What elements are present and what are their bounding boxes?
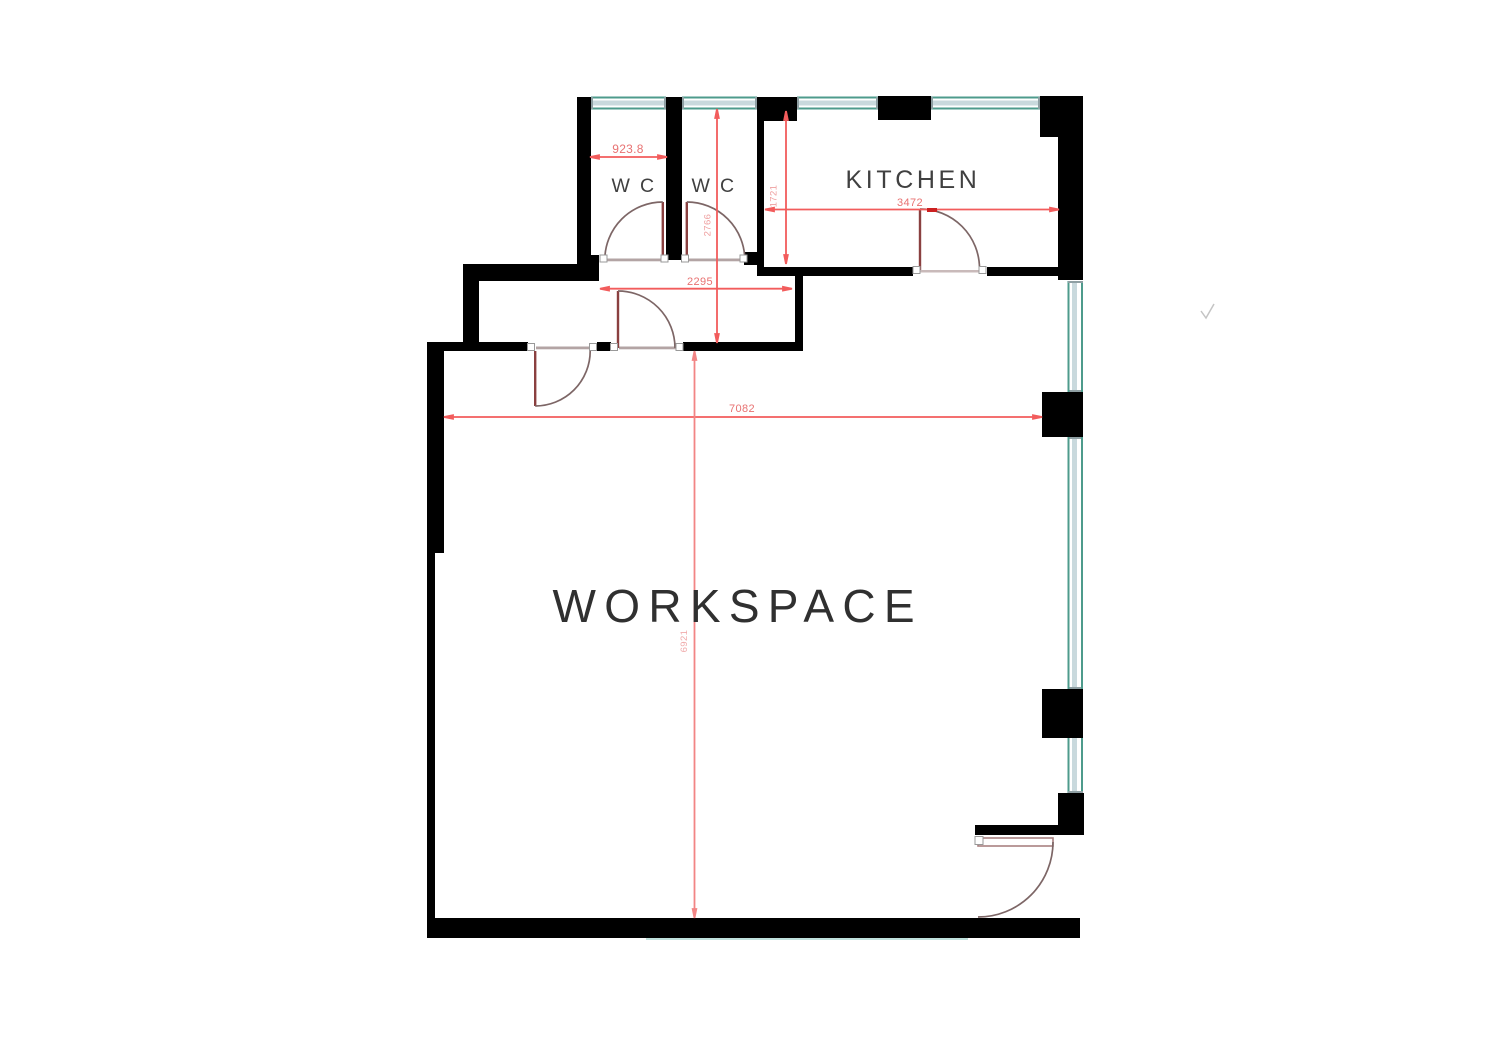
svg-text:KITCHEN: KITCHEN	[846, 166, 981, 194]
svg-text:2295: 2295	[687, 276, 713, 288]
svg-text:7082: 7082	[729, 403, 755, 415]
svg-text:W C: W C	[691, 175, 736, 197]
svg-text:923.8: 923.8	[612, 142, 644, 156]
svg-text:6921: 6921	[679, 630, 690, 653]
svg-text:W C: W C	[611, 175, 656, 197]
svg-text:WORKSPACE: WORKSPACE	[553, 580, 923, 632]
svg-text:2766: 2766	[703, 214, 714, 237]
svg-text:3472: 3472	[897, 197, 923, 209]
svg-text:1721: 1721	[769, 185, 780, 208]
